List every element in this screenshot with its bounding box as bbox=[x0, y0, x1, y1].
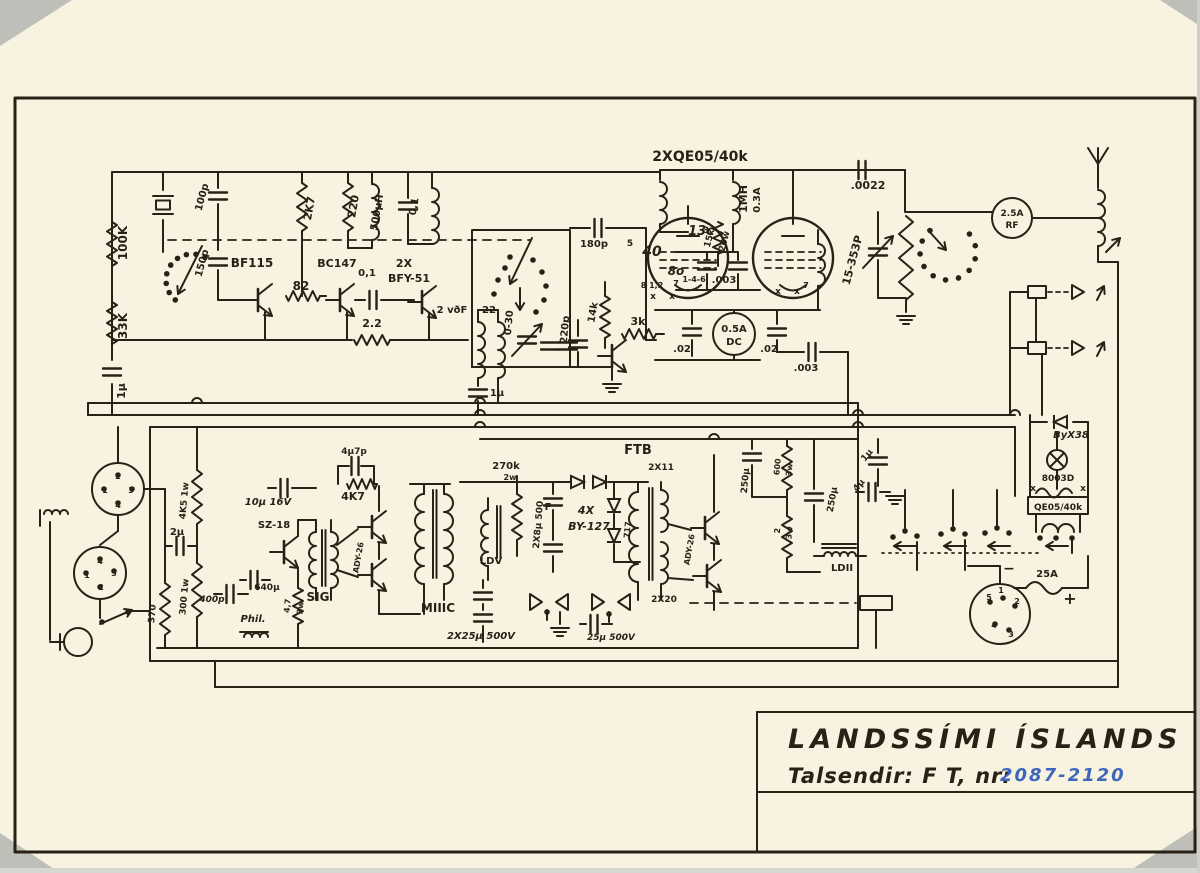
label-s1-3: 3 bbox=[128, 486, 134, 495]
label-l-ftb: FTB bbox=[624, 443, 652, 458]
schematic-canvas: 100K33K1μ100p150pBF11582BC1472K7220500μH… bbox=[0, 0, 1200, 873]
label-q-bf115: BF115 bbox=[231, 256, 273, 270]
label-pin-7b: 7 bbox=[803, 281, 809, 290]
label-pin-812: 8 1,2 bbox=[641, 281, 664, 290]
label-l-ldii: LDII bbox=[831, 563, 853, 574]
label-d-4x: 4X bbox=[577, 504, 595, 517]
label-c-003a: .003 bbox=[712, 275, 737, 286]
label-q-sz18: SZ-18 bbox=[258, 520, 290, 531]
label-x-b: x bbox=[1080, 484, 1086, 494]
scanned-schematic-photo: { "title_block": { "organization": "LAND… bbox=[0, 0, 1200, 873]
label-c-003b: .003 bbox=[794, 363, 819, 374]
label-c-030: 0-30 bbox=[503, 310, 516, 336]
label-c-4u: 4μ bbox=[851, 477, 867, 494]
label-d-byx38: ByX38 bbox=[1053, 430, 1089, 441]
label-sym-plus: + bbox=[1063, 589, 1076, 608]
label-m-dc: DC bbox=[726, 337, 742, 348]
label-c-10u: 10μ 16V bbox=[245, 497, 293, 508]
label-x-a: x bbox=[1030, 484, 1036, 494]
label-sr-5: 5 bbox=[986, 593, 992, 602]
label-c-100p: 100p bbox=[194, 182, 212, 212]
label-c-2u: 2μ bbox=[170, 527, 185, 538]
label-q-ady26b: ADY-26 bbox=[682, 533, 696, 566]
label-pin-x2: x bbox=[669, 292, 675, 302]
label-b-13c: 13c bbox=[688, 224, 714, 239]
label-c-250ua: 250μ bbox=[740, 467, 752, 494]
title-organization: LANDSSÍMI ÍSLANDS bbox=[788, 723, 1182, 755]
label-sr-3: 3 bbox=[1008, 630, 1014, 639]
label-pin-x1: x bbox=[650, 292, 656, 302]
label-s1-4: 4 bbox=[115, 501, 121, 510]
label-s2-4: 4 bbox=[97, 557, 103, 566]
label-m-05a: 0.5A bbox=[721, 324, 747, 335]
label-r-2ohm: 2 bbox=[773, 528, 782, 534]
label-c-01-coupling: 0,1 bbox=[358, 268, 376, 279]
label-r-33k: 33K bbox=[116, 312, 130, 339]
label-c-01-tank: 0,1 bbox=[408, 197, 422, 216]
label-r-2w: 2w bbox=[504, 473, 518, 482]
label-l-sig: SIG bbox=[307, 590, 330, 604]
label-f-25a: 25A bbox=[1036, 569, 1058, 580]
label-c-2x25u: 2X25μ 500V bbox=[447, 631, 516, 642]
label-r-4k5: 4K5 1w bbox=[178, 482, 191, 520]
label-pin-x4: x bbox=[794, 287, 800, 297]
label-sr-4: 4 bbox=[991, 621, 997, 630]
label-c-1uc: 1μ bbox=[859, 447, 875, 464]
label-c-400p: 400p bbox=[198, 595, 225, 605]
label-l-22b: 22 bbox=[482, 305, 496, 316]
label-l-717: 717 bbox=[622, 521, 632, 538]
label-s2-1: 1 bbox=[84, 571, 90, 580]
label-r-3wc: 3w bbox=[784, 525, 794, 539]
component-labels: 100K33K1μ100p150pBF11582BC1472K7220500μH… bbox=[84, 149, 1089, 643]
label-c-15353: 15-353P bbox=[840, 234, 866, 287]
label-r-370: 370 bbox=[147, 604, 159, 624]
label-l-ldv: LDV bbox=[480, 556, 503, 567]
label-l-03a: 0.3A bbox=[752, 187, 763, 213]
label-r-600: 600 bbox=[772, 458, 782, 476]
label-l-1mh: 1MH bbox=[737, 185, 750, 213]
label-l-500uh: 500μH bbox=[369, 194, 386, 232]
label-r-3wb: 3w bbox=[784, 462, 794, 476]
label-r-4k7: 4K7 bbox=[341, 490, 365, 503]
label-s2-3: 3 bbox=[111, 569, 117, 578]
label-l-2x20: 2X20 bbox=[651, 595, 677, 605]
label-l-2vdf: 2 vðF bbox=[437, 305, 468, 316]
label-pin-x3: x bbox=[775, 287, 781, 297]
label-l-m3c: MIIIC bbox=[421, 601, 455, 615]
label-c-250ub: 250μ bbox=[826, 486, 840, 513]
label-pin-3: 3 bbox=[703, 226, 709, 236]
label-c-02b: .02 bbox=[760, 344, 778, 355]
label-r-270k: 270k bbox=[492, 461, 520, 472]
title-serial-numbers: 2087-2120 bbox=[1000, 765, 1126, 786]
label-q-2x: 2X bbox=[396, 257, 413, 270]
label-c-25u: 25μ 500V bbox=[587, 633, 636, 643]
label-b-f: F bbox=[545, 502, 552, 513]
label-pin-7: 7 bbox=[673, 279, 679, 288]
label-l-146: 1-4-6 bbox=[682, 275, 706, 284]
label-c-1u-mid: 1μ bbox=[490, 388, 505, 399]
label-l-2x11: 2X11 bbox=[648, 463, 674, 473]
label-c-180p: 180p bbox=[580, 239, 608, 250]
label-r-47: 4,7 bbox=[282, 598, 292, 613]
label-l-8003d: 8003D bbox=[1042, 474, 1075, 484]
label-r-22: 2.2 bbox=[362, 317, 382, 330]
label-b-40: 40 bbox=[641, 244, 662, 260]
label-d-by127: BY-127 bbox=[568, 520, 610, 533]
label-l-phil: Phil. bbox=[240, 614, 265, 625]
label-s2-2: 2 bbox=[98, 583, 104, 592]
label-c-4u7: 4μ7p bbox=[341, 447, 367, 457]
label-c-640u: 640μ bbox=[254, 583, 280, 593]
label-r-300: 300 1w bbox=[178, 578, 191, 615]
label-c-0022: .0022 bbox=[851, 179, 886, 192]
label-r-220: 220 bbox=[345, 194, 362, 219]
label-r-14k: 14k bbox=[586, 301, 600, 324]
label-q-bfy51: BFY-51 bbox=[388, 272, 430, 285]
label-s1-2: 2 bbox=[115, 472, 121, 481]
label-pin-5: 5 bbox=[627, 239, 633, 249]
label-sym-minus: − bbox=[1003, 561, 1015, 577]
label-s1-1: 1 bbox=[102, 486, 108, 495]
label-c-1u-left: 1μ bbox=[115, 383, 128, 399]
label-sr-1: 1 bbox=[998, 586, 1004, 595]
label-r-82: 82 bbox=[293, 279, 310, 293]
title-device-label: Talsendir: F T, nr: bbox=[788, 764, 1012, 788]
label-q-bc147: BC147 bbox=[317, 257, 356, 270]
label-r-3k: 3k bbox=[631, 315, 647, 328]
label-l-qe05: QE05/40k bbox=[1034, 503, 1083, 513]
label-l-tubes: 2XQE05/40k bbox=[652, 149, 748, 165]
label-r-3wa: 3w bbox=[295, 600, 305, 614]
label-sr-2: 2 bbox=[1014, 597, 1020, 606]
label-r-2k7: 2K7 bbox=[301, 196, 318, 222]
label-c-02a: .02 bbox=[673, 344, 691, 355]
label-m-rf: RF bbox=[1005, 221, 1018, 231]
title-block: LANDSSÍMI ÍSLANDS Talsendir: F T, nr: 20… bbox=[788, 723, 1182, 788]
label-m-25a: 2.5A bbox=[1001, 209, 1024, 219]
label-q-ady26a: ADY-26 bbox=[351, 541, 365, 574]
label-r-100k: 100K bbox=[116, 225, 130, 260]
